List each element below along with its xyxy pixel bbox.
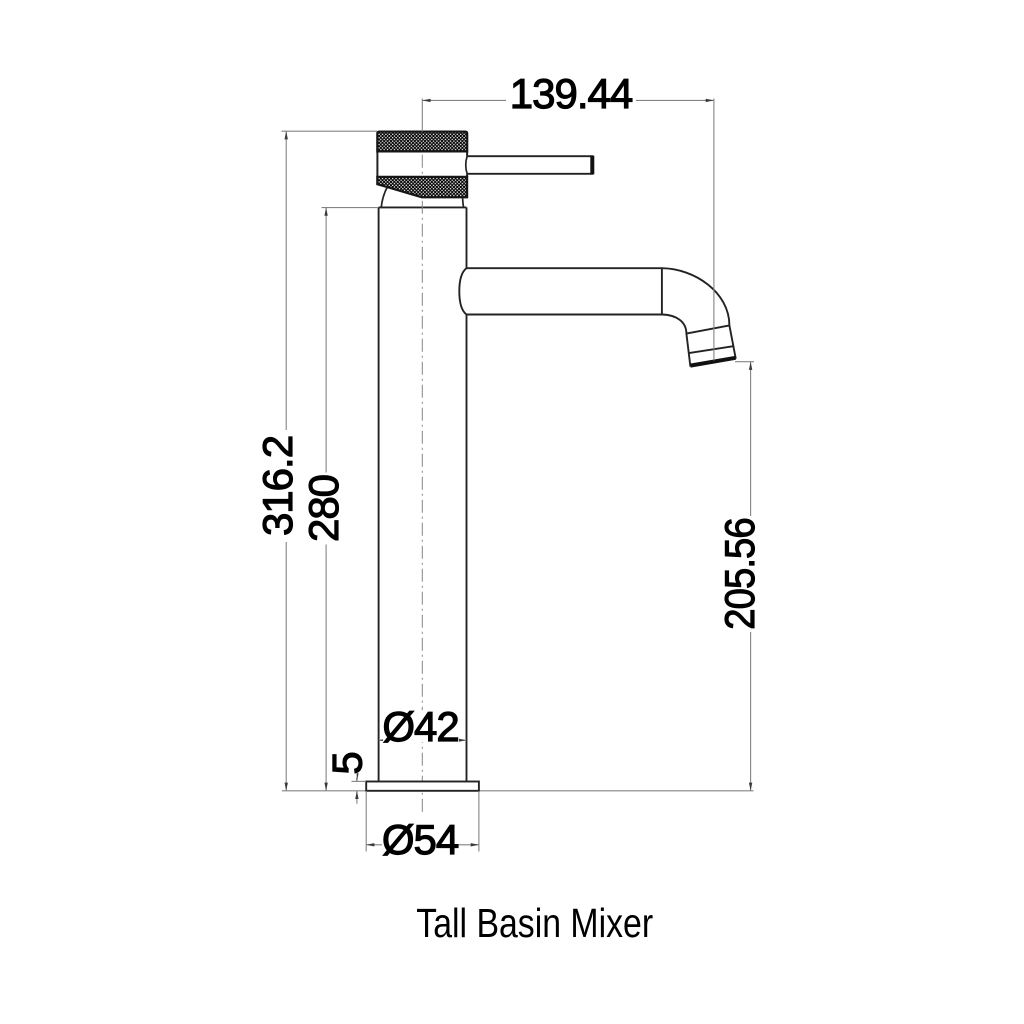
svg-text:280: 280: [300, 475, 347, 542]
svg-text:Ø42: Ø42: [382, 703, 458, 750]
svg-text:205.56: 205.56: [716, 518, 763, 629]
svg-text:Tall Basin Mixer: Tall Basin Mixer: [416, 900, 653, 946]
svg-text:316.2: 316.2: [254, 436, 301, 536]
svg-text:139.44: 139.44: [510, 70, 633, 117]
svg-text:5: 5: [324, 751, 371, 774]
svg-text:Ø54: Ø54: [382, 816, 459, 863]
